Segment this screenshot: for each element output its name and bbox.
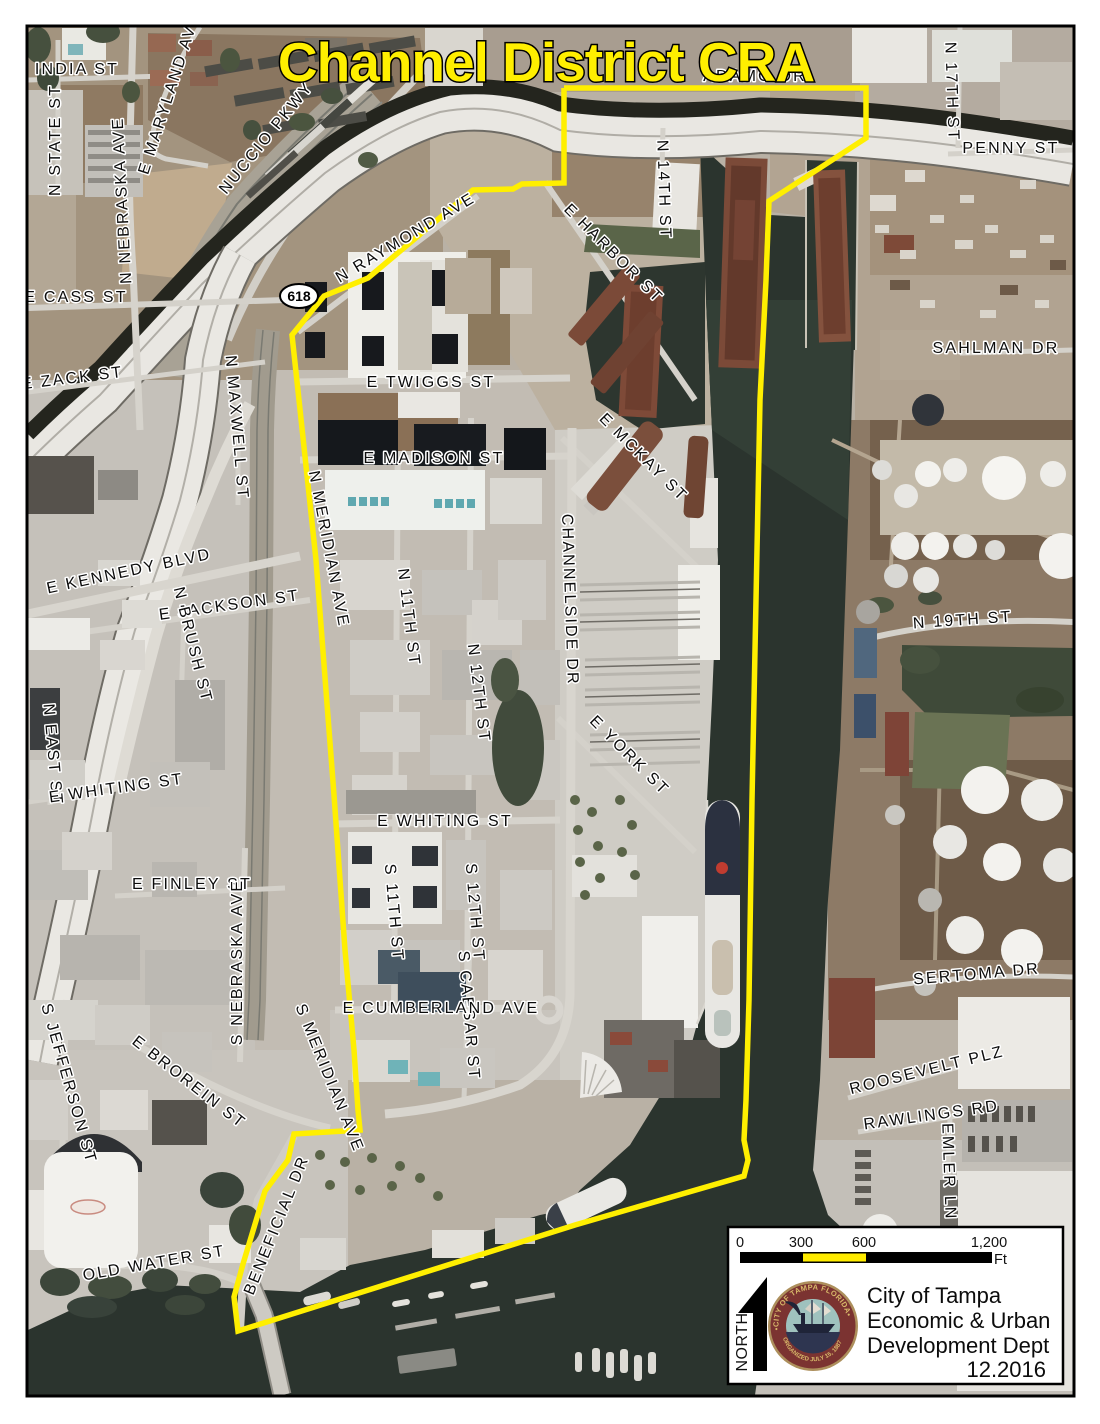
- svg-text:E CUMBERLAND AVE: E CUMBERLAND AVE: [343, 1000, 540, 1017]
- svg-text:Channel District CRA: Channel District CRA: [278, 31, 814, 93]
- svg-text:12.2016: 12.2016: [966, 1357, 1046, 1382]
- svg-text:N 14TH ST: N 14TH ST: [653, 140, 673, 240]
- svg-text:SAHLMAN DR: SAHLMAN DR: [933, 340, 1060, 357]
- svg-text:EMLER LN: EMLER LN: [938, 1123, 958, 1221]
- svg-text:E CASS ST: E CASS ST: [24, 289, 127, 306]
- svg-text:E MADISON ST: E MADISON ST: [363, 450, 504, 467]
- svg-text:N 17TH ST: N 17TH ST: [941, 42, 961, 142]
- svg-text:E WHITING ST: E WHITING ST: [377, 813, 513, 830]
- svg-text:600: 600: [852, 1235, 876, 1251]
- svg-text:300: 300: [789, 1235, 813, 1251]
- svg-text:Economic & Urban: Economic & Urban: [867, 1308, 1050, 1333]
- svg-text:1,200: 1,200: [971, 1235, 1007, 1251]
- svg-text:618: 618: [287, 288, 311, 304]
- svg-text:0: 0: [736, 1235, 744, 1251]
- svg-text:Development Dept: Development Dept: [867, 1333, 1049, 1358]
- svg-text:E TWIGGS ST: E TWIGGS ST: [367, 374, 496, 391]
- svg-text:N STATE ST: N STATE ST: [47, 84, 64, 196]
- svg-text:City of Tampa: City of Tampa: [867, 1283, 1002, 1308]
- svg-text:Ft: Ft: [994, 1252, 1007, 1268]
- svg-text:INDIA ST: INDIA ST: [35, 61, 119, 78]
- svg-text:NORTH: NORTH: [734, 1312, 751, 1371]
- svg-text:S NEBRASKA AVE: S NEBRASKA AVE: [229, 879, 246, 1046]
- svg-text:PENNY ST: PENNY ST: [962, 140, 1059, 157]
